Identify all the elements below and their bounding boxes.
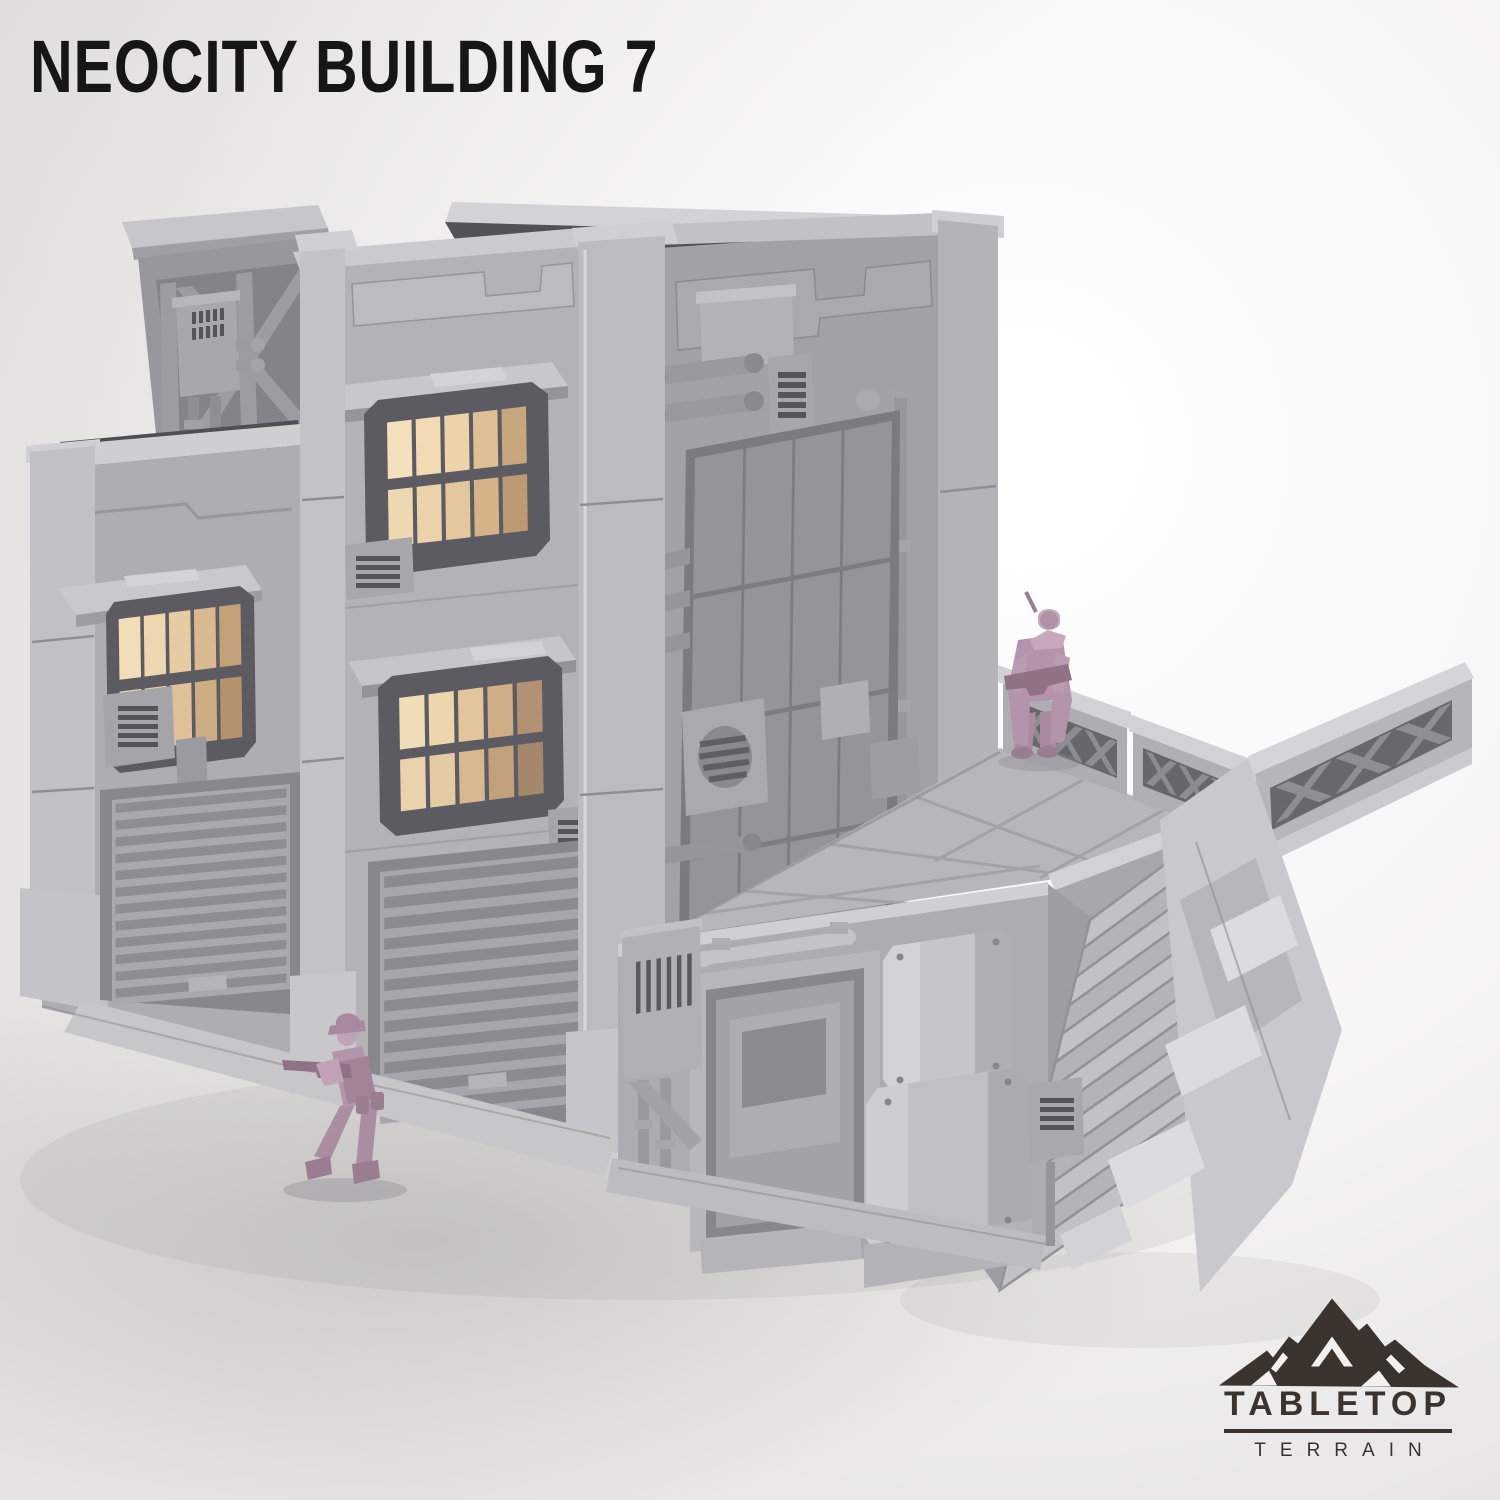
garage-handle [188,975,227,992]
left-corner-column [30,446,95,905]
product-render-canvas: NEOCITY BUILDING 7 TABLETOP TERRAIN [0,0,1500,1500]
mountain-logo-icon [1213,1285,1463,1393]
wall-box-small [820,680,870,740]
door-window [742,1018,826,1108]
vent-plate-upper [345,537,414,600]
main-window-mid [348,636,576,836]
wall-box-lower [870,736,920,800]
building-render [0,0,1500,1500]
brand-name: TABLETOP [1224,1387,1452,1433]
garage-door-left [100,772,300,1015]
page-title: NEOCITY BUILDING 7 [30,24,658,109]
left-block [20,420,312,1072]
ac-unit [682,698,768,816]
brand-logo: TABLETOP TERRAIN [1204,1285,1472,1462]
brand-subname: TERRAIN [1240,1440,1435,1462]
back-corner-column [938,220,998,800]
